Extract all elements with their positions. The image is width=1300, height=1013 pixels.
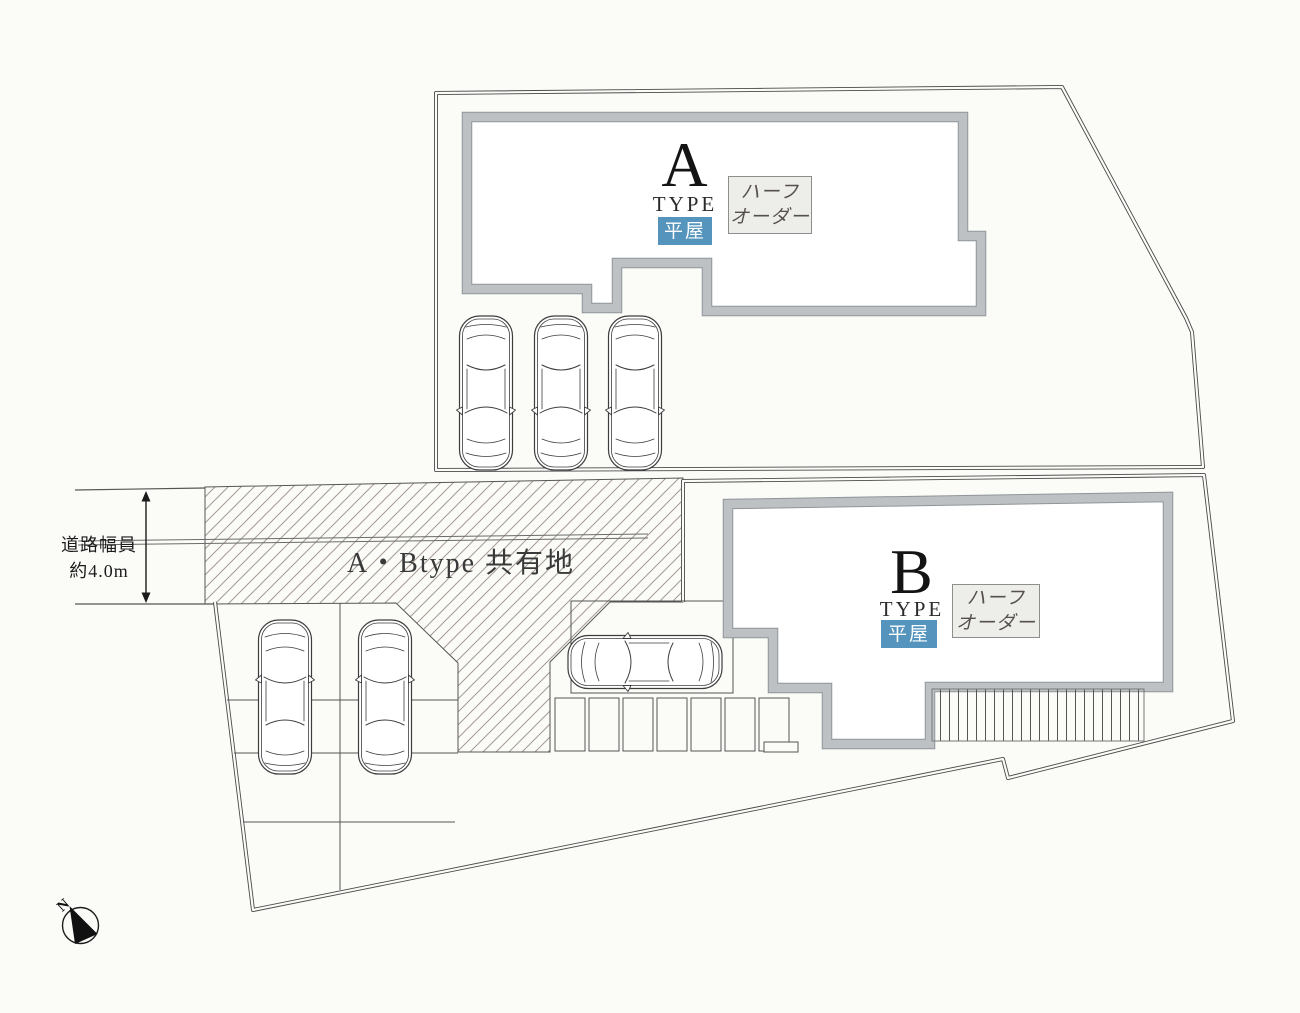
road-width-line2: 約4.0m: [55, 558, 143, 584]
building-a-storey-badge: 平屋: [658, 217, 712, 245]
order-box-line: オーダー: [730, 205, 810, 230]
building-b-order-box: ハーフ オーダー: [952, 584, 1040, 638]
car-icon: [457, 316, 516, 470]
building-a-order-box: ハーフ オーダー: [728, 176, 812, 234]
building-b-type-label: TYPE: [864, 599, 960, 620]
order-box-line: ハーフ: [741, 180, 800, 205]
compass: N: [54, 896, 98, 944]
car-icon: [256, 620, 315, 774]
building-b-letter: B: [864, 540, 960, 604]
site-plan: N A TYPE 平屋 ハーフ オーダー B TYPE 平屋 ハーフ オーダー …: [0, 0, 1300, 1013]
road-width-label: 道路幅員 約4.0m: [55, 532, 143, 584]
road-width-line1: 道路幅員: [55, 532, 143, 558]
building-a-letter: A: [637, 133, 733, 197]
car-icon: [356, 620, 415, 774]
car-icon: [606, 316, 665, 470]
building-a-type-label: TYPE: [637, 194, 733, 215]
car-icon: [532, 316, 591, 470]
building-b-storey-badge: 平屋: [881, 620, 937, 648]
shared-area-label: A・Btype 共有地: [336, 550, 586, 578]
compass-n-label: N: [54, 896, 73, 915]
order-box-line: ハーフ: [967, 586, 1026, 611]
order-box-line: オーダー: [956, 611, 1036, 636]
building-b-deck: [932, 689, 1144, 741]
car-icon: [568, 633, 722, 692]
